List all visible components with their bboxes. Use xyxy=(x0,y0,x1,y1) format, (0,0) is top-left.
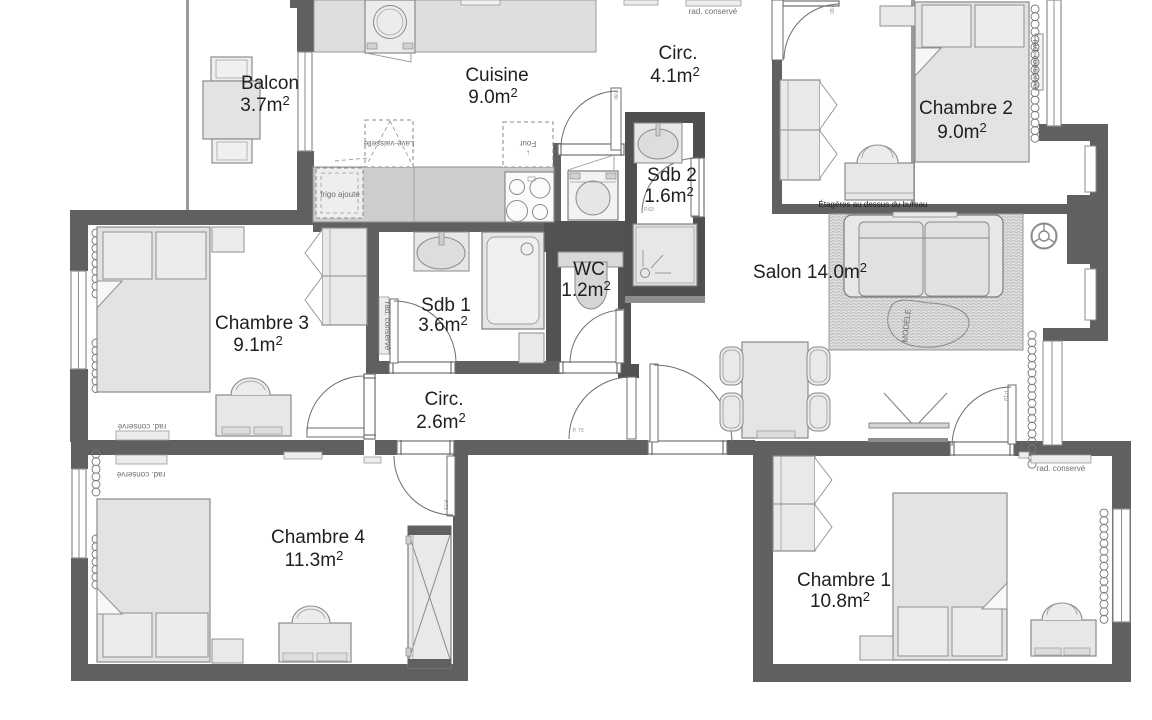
svg-text:P.80: P.80 xyxy=(612,90,618,100)
svg-text:P.73: P.73 xyxy=(442,500,448,510)
svg-text:1.2m2: 1.2m2 xyxy=(561,278,610,301)
svg-text:4.1m2: 4.1m2 xyxy=(650,64,699,87)
svg-text:Circ.: Circ. xyxy=(658,43,697,64)
svg-text:3.7m2: 3.7m2 xyxy=(240,93,289,116)
svg-text:P.63: P.63 xyxy=(644,207,654,213)
svg-text:Salon 14.0m2: Salon 14.0m2 xyxy=(753,260,867,283)
svg-text:rad. conservé: rad. conservé xyxy=(117,422,166,431)
svg-text:frigo ajouté: frigo ajouté xyxy=(320,190,360,199)
svg-text:rad. conservé: rad. conservé xyxy=(1037,464,1086,473)
svg-text:rad. conservé: rad. conservé xyxy=(383,302,392,351)
svg-text:Circ.: Circ. xyxy=(424,389,463,410)
svg-text:P.19: P.19 xyxy=(1002,391,1008,401)
svg-text:rad. conservé: rad. conservé xyxy=(116,470,165,479)
svg-text:rad. conservé: rad. conservé xyxy=(1031,40,1040,89)
svg-text:Cuisine: Cuisine xyxy=(465,65,528,86)
svg-text:Lave-vaisselle: Lave-vaisselle xyxy=(363,139,414,148)
svg-text:P. 73: P. 73 xyxy=(572,428,583,434)
svg-text:11.3m2: 11.3m2 xyxy=(285,548,344,571)
svg-text:3.6m2: 3.6m2 xyxy=(418,313,467,336)
svg-text:9.0m2: 9.0m2 xyxy=(937,120,986,143)
svg-text:10.8m2: 10.8m2 xyxy=(810,589,870,612)
svg-text:2.6m2: 2.6m2 xyxy=(416,410,465,433)
svg-text:9.1m2: 9.1m2 xyxy=(233,333,282,356)
svg-text:rad. conservé: rad. conservé xyxy=(689,7,738,16)
svg-text:Chambre 4: Chambre 4 xyxy=(271,527,365,548)
svg-text:Four: Four xyxy=(519,139,536,148)
svg-text:Chambre 1: Chambre 1 xyxy=(797,570,891,591)
svg-text:1.6m2: 1.6m2 xyxy=(644,184,693,207)
svg-text:Étagères au dessus du bureau: Étagères au dessus du bureau xyxy=(819,200,928,209)
svg-text:↑: ↑ xyxy=(526,148,530,157)
svg-text:Sdb 2: Sdb 2 xyxy=(647,165,697,186)
svg-text:Balcon: Balcon xyxy=(241,73,299,94)
svg-text:Chambre 3: Chambre 3 xyxy=(215,313,309,334)
svg-text:P.90: P.90 xyxy=(828,4,834,14)
svg-text:Chambre 2: Chambre 2 xyxy=(919,98,1013,119)
svg-text:WC: WC xyxy=(573,259,605,280)
svg-text:9.0m2: 9.0m2 xyxy=(468,85,517,108)
